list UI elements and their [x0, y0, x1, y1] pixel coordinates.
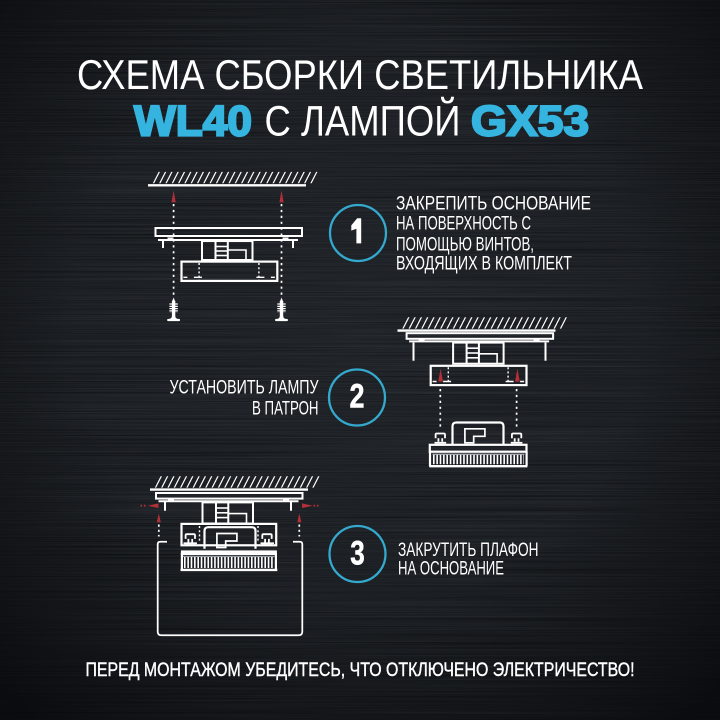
svg-text:3: 3: [350, 534, 365, 572]
svg-text:ПОМОЩЬЮ ВИНТОВ,: ПОМОЩЬЮ ВИНТОВ,: [396, 234, 534, 255]
svg-text:GX53: GX53: [471, 98, 589, 146]
svg-text:УСТАНОВИТЬ ЛАМПУ: УСТАНОВИТЬ ЛАМПУ: [170, 378, 320, 399]
svg-text:ЗАКРЕПИТЬ ОСНОВАНИЕ: ЗАКРЕПИТЬ ОСНОВАНИЕ: [396, 193, 591, 214]
svg-text:СХЕМА СБОРКИ СВЕТИЛЬНИКА: СХЕМА СБОРКИ СВЕТИЛЬНИКА: [77, 52, 643, 98]
svg-text:ПЕРЕД МОНТАЖОМ УБЕДИТЕСЬ, ЧТО: ПЕРЕД МОНТАЖОМ УБЕДИТЕСЬ, ЧТО ОТКЛЮЧЕНО …: [86, 660, 635, 681]
svg-text:С ЛАМПОЙ: С ЛАМПОЙ: [265, 97, 461, 146]
svg-text:В ПАТРОН: В ПАТРОН: [252, 399, 319, 420]
svg-text:2: 2: [350, 377, 365, 415]
svg-text:WL40: WL40: [134, 98, 252, 146]
svg-text:ВХОДЯЩИХ В КОМПЛЕКТ: ВХОДЯЩИХ В КОМПЛЕКТ: [396, 253, 572, 274]
svg-text:НА ПОВЕРХНОСТЬ С: НА ПОВЕРХНОСТЬ С: [396, 214, 531, 235]
svg-text:НА ОСНОВАНИЕ: НА ОСНОВАНИЕ: [398, 559, 504, 580]
